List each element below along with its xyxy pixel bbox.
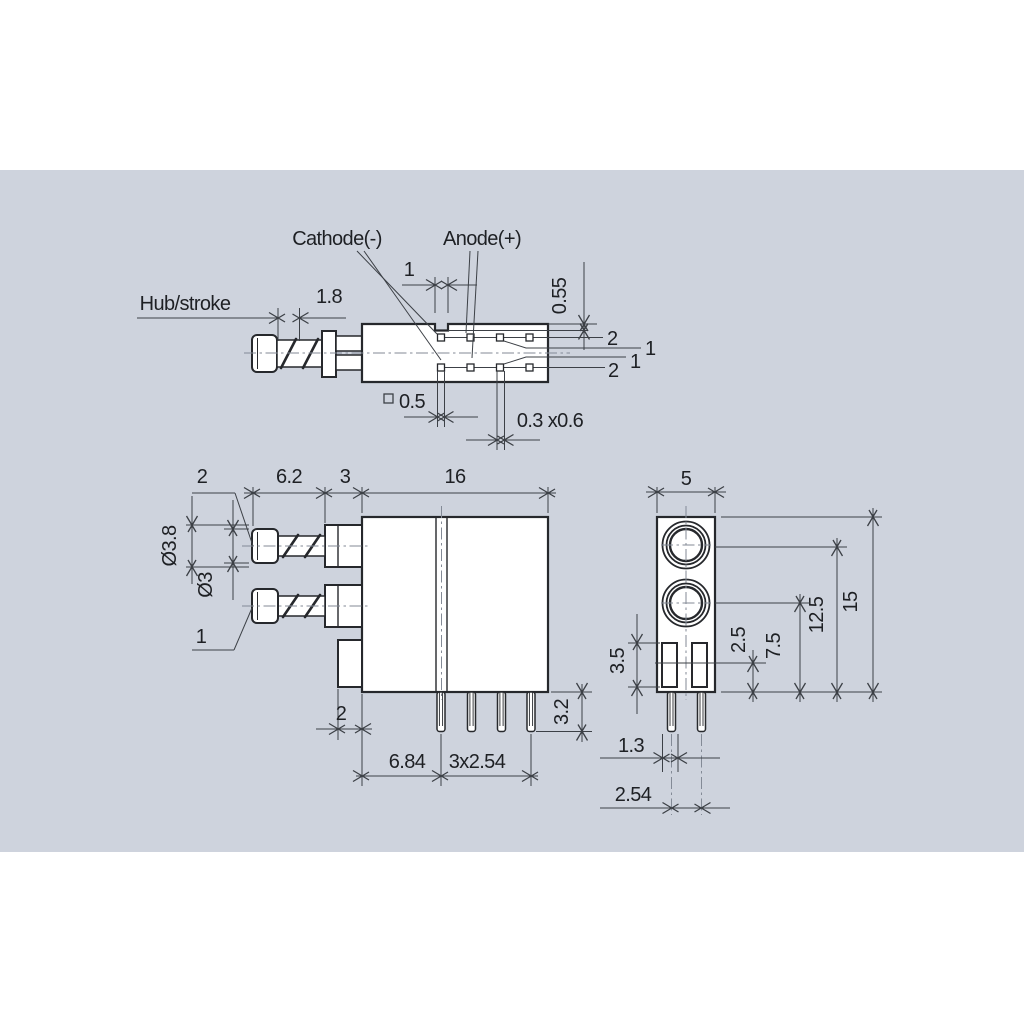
cathode-label: Cathode(-): [292, 228, 382, 250]
pin-callout-1-b: 1: [630, 351, 641, 373]
dim-stroke: Hub/stroke 1.8: [137, 286, 346, 341]
plunger-latch: [336, 336, 362, 351]
dim-notch-width-value: 1: [404, 259, 415, 281]
front-pins: [437, 692, 535, 732]
dim-shaft-dia-value: Ø3: [195, 572, 217, 598]
pin-callout-2-bottom: 2: [608, 360, 619, 382]
pin-callout-2-top: 2: [607, 328, 618, 350]
pin-callout-labels: 2 1 1 2: [607, 328, 656, 382]
switch-body-front: [362, 517, 548, 692]
dim-button2-height-value: 7.5: [763, 633, 785, 659]
callout-button-1: 1: [192, 608, 252, 650]
hub-stroke-label: Hub/stroke: [140, 293, 231, 315]
dim-body-height-value: 15: [840, 591, 862, 613]
pin: [468, 692, 476, 732]
pin-callout-1-a: 1: [645, 338, 656, 360]
dim-window-offset-value: 2.5: [728, 627, 750, 653]
dim-notch-depth-value: 0.55: [549, 277, 571, 314]
dim-cap-callout: 2: [197, 466, 208, 488]
led-window: [662, 643, 677, 687]
dim-tab-width: 2: [316, 689, 372, 786]
dim-body-width-value: 5: [681, 468, 692, 490]
side-view: Cathode(-) Anode(+) 1 Hub/stroke 1.8: [137, 228, 656, 450]
pin: [698, 692, 706, 732]
plunger-latch: [336, 355, 362, 370]
anode-label: Anode(+): [443, 228, 521, 250]
dim-shaft-dia: Ø3: [195, 500, 249, 600]
dim-pin-length-value: 3.2: [551, 699, 573, 725]
dim-cap-dia-value: Ø3.8: [159, 525, 181, 566]
dim-button1-height: 12.5: [715, 538, 847, 702]
technical-drawing: Cathode(-) Anode(+) 1 Hub/stroke 1.8: [0, 0, 1024, 1024]
dim-end-pin-pitch-value: 2.54: [615, 784, 652, 806]
side-plunger: [252, 331, 362, 377]
pin: [668, 692, 676, 732]
dim-button1-height-value: 12.5: [806, 596, 828, 633]
dim-stroke-value: 1.8: [316, 286, 342, 308]
dim-body-height: 15: [721, 508, 882, 702]
dim-window-width-value: 1.3: [618, 735, 644, 757]
dim-plunger-len: 6.2: [276, 466, 302, 488]
callout-button-1-value: 1: [196, 626, 207, 648]
dim-cap-dia: Ø3.8: [159, 496, 249, 584]
dim-pin-section-value: 0.3 x0.6: [517, 410, 584, 432]
dim-tab-width-value: 2: [336, 703, 347, 725]
pin: [498, 692, 506, 732]
dim-notch-depth: 0.55: [549, 262, 584, 350]
plunger-flange: [322, 331, 336, 377]
page: Cathode(-) Anode(+) 1 Hub/stroke 1.8: [0, 0, 1024, 1024]
square-symbol: [384, 394, 393, 403]
dim-end-pin-pitch: 2.54: [600, 784, 730, 808]
dim-collar-len: 3: [340, 466, 351, 488]
end-view: 5 15 12.5: [600, 468, 882, 815]
pin: [527, 692, 535, 732]
dim-window-height: 3.5: [607, 614, 660, 714]
led-window: [692, 643, 707, 687]
dim-pin-offset-value: 6.84: [389, 751, 426, 773]
dim-pin-positions: 6.84 3x2.54: [356, 734, 538, 786]
dim-pin-pitch-value: 3x2.54: [449, 751, 506, 773]
dim-notch-width: 1: [402, 259, 477, 313]
dim-pad-size-value: 0.5: [399, 391, 425, 413]
dim-body-len: 16: [444, 466, 466, 488]
end-pins: [668, 692, 706, 732]
pin: [437, 692, 445, 732]
front-view: 2 6.2 3 16 Ø3.8 Ø3: [159, 466, 592, 786]
dim-window-height-value: 3.5: [607, 648, 629, 674]
side-tab: [338, 640, 362, 687]
